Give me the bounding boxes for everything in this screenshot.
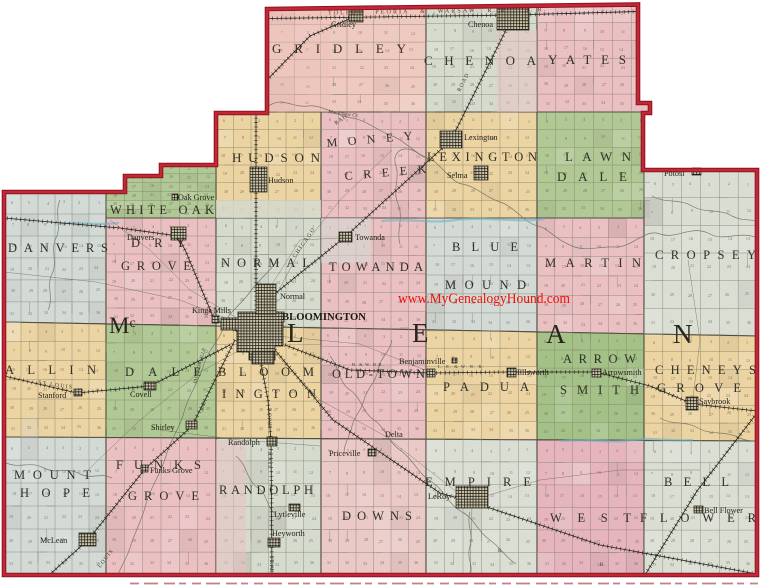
svg-text:www.MyGenealogyHound.com: www.MyGenealogyHound.com: [398, 291, 570, 307]
